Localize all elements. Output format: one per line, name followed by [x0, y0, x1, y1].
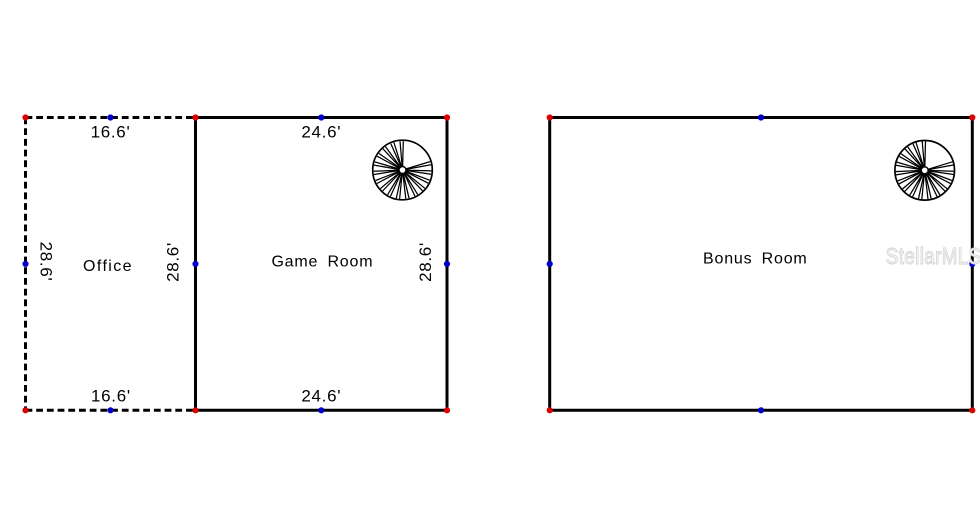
svg-text:28.6': 28.6': [416, 242, 435, 282]
svg-text:28.6': 28.6': [37, 242, 56, 282]
svg-text:24.6': 24.6': [301, 386, 341, 405]
svg-text:Game Room: Game Room: [271, 253, 373, 270]
svg-text:28.6': 28.6': [164, 242, 183, 282]
svg-text:StellarMLS: StellarMLS: [886, 244, 980, 269]
svg-text:Bonus Room: Bonus Room: [703, 250, 808, 267]
svg-text:16.6': 16.6': [91, 386, 131, 405]
svg-text:16.6': 16.6': [91, 122, 131, 141]
svg-text:24.6': 24.6': [301, 122, 341, 141]
svg-text:Office: Office: [83, 258, 133, 275]
